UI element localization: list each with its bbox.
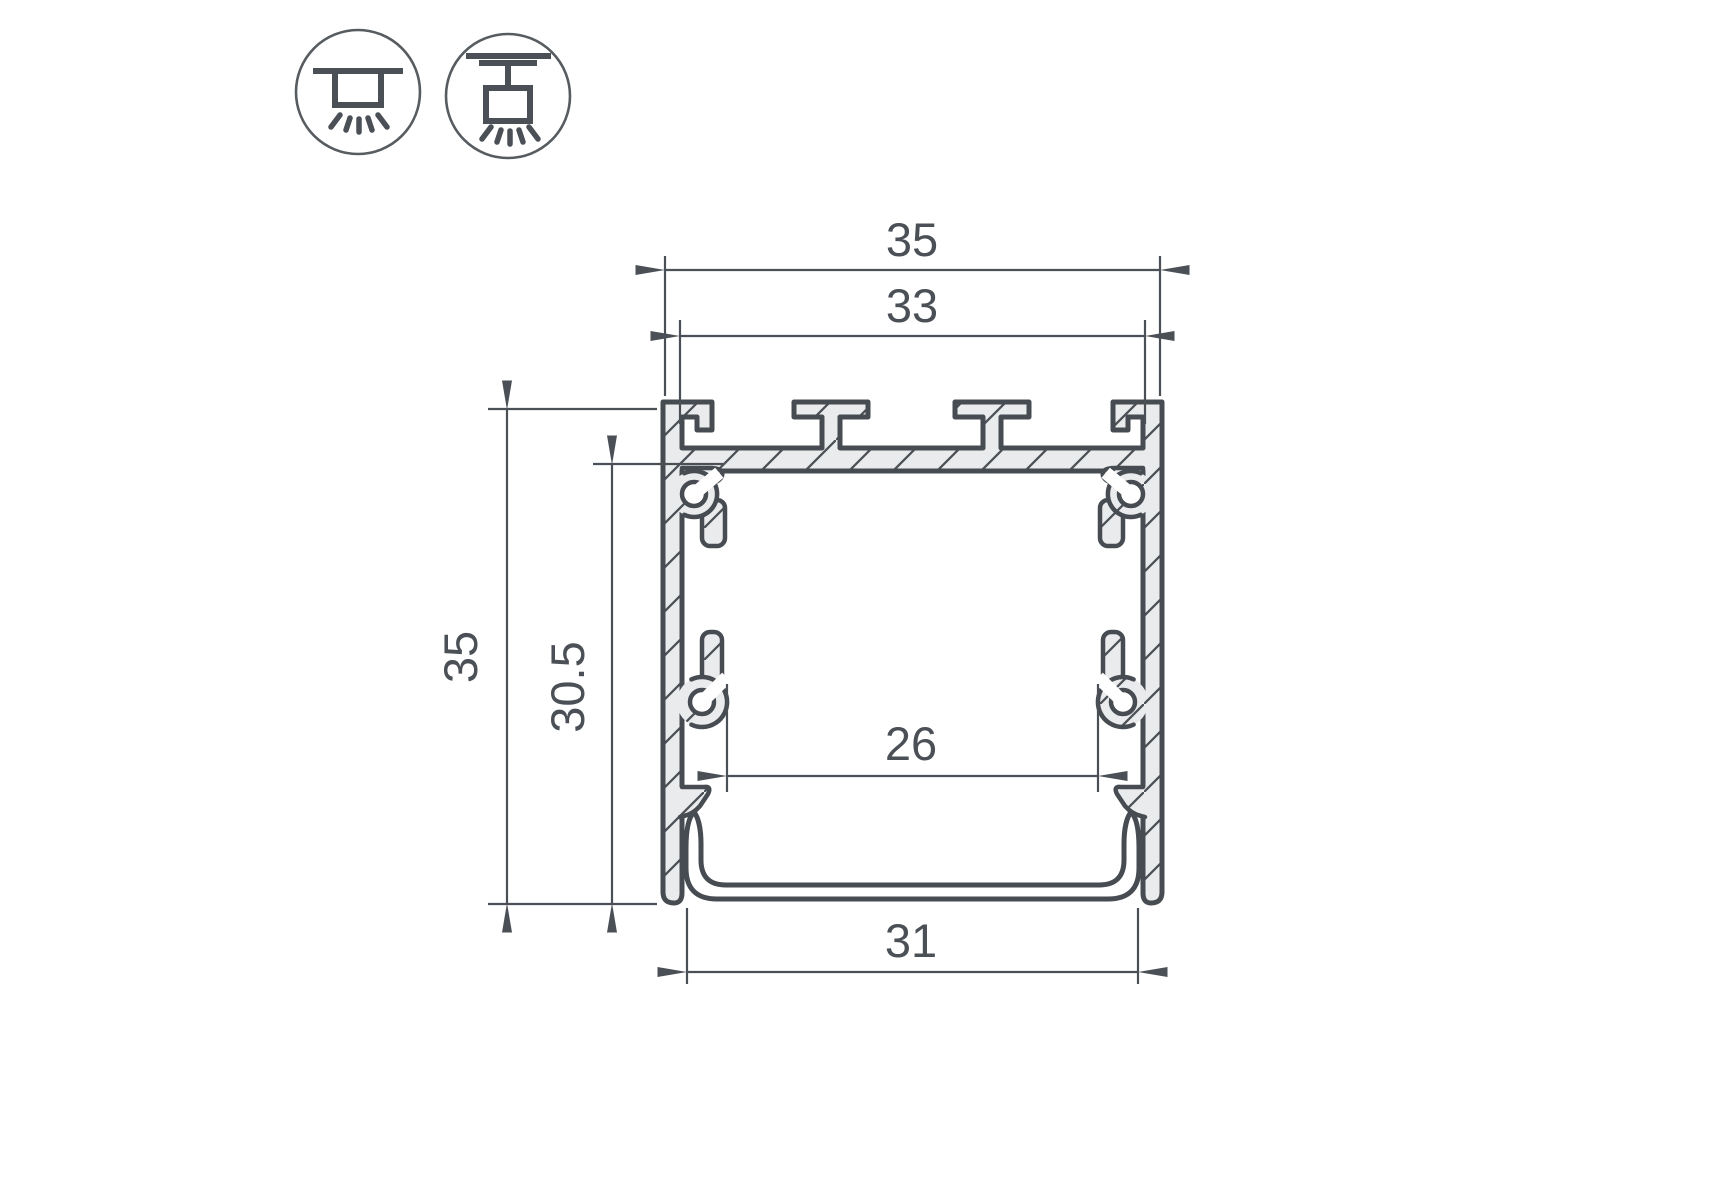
- luminaire-box: [335, 71, 381, 105]
- technical-drawing: 35 33 35 30.5 26 31: [0, 0, 1715, 1200]
- boss-finger: [1103, 632, 1123, 682]
- light-rays-icon: [331, 115, 387, 132]
- luminaire-box: [486, 88, 530, 121]
- profile-cross-section: [663, 402, 1162, 903]
- dimension-inner-top-width: 33: [680, 279, 1145, 424]
- pendant-mount-icon: [446, 34, 570, 158]
- dim-label-inner-height: 30.5: [541, 641, 594, 732]
- dim-label-inner-top-width: 33: [886, 279, 938, 332]
- icon-circle: [296, 30, 420, 154]
- screw-boss-mid-left: [677, 632, 731, 727]
- dim-label-inner-width: 26: [885, 717, 937, 770]
- diffuser-lens: [686, 812, 1139, 899]
- drawing-page: 35 33 35 30.5 26 31: [0, 0, 1715, 1200]
- screw-boss-mid-right: [1094, 632, 1148, 727]
- dimension-inner-width: 26: [727, 684, 1098, 792]
- dim-label-outer-height: 35: [434, 631, 487, 683]
- diffuser-hook-left: [676, 787, 709, 817]
- profile-body: [663, 402, 1162, 903]
- surface-mount-icon: [296, 30, 420, 154]
- light-rays-icon: [482, 127, 538, 144]
- diffuser-hook-right: [1116, 787, 1149, 817]
- dimension-bottom-width: 31: [687, 908, 1138, 984]
- dim-label-outer-width: 35: [886, 213, 938, 266]
- boss-finger: [702, 632, 722, 682]
- dim-label-bottom-width: 31: [885, 914, 937, 967]
